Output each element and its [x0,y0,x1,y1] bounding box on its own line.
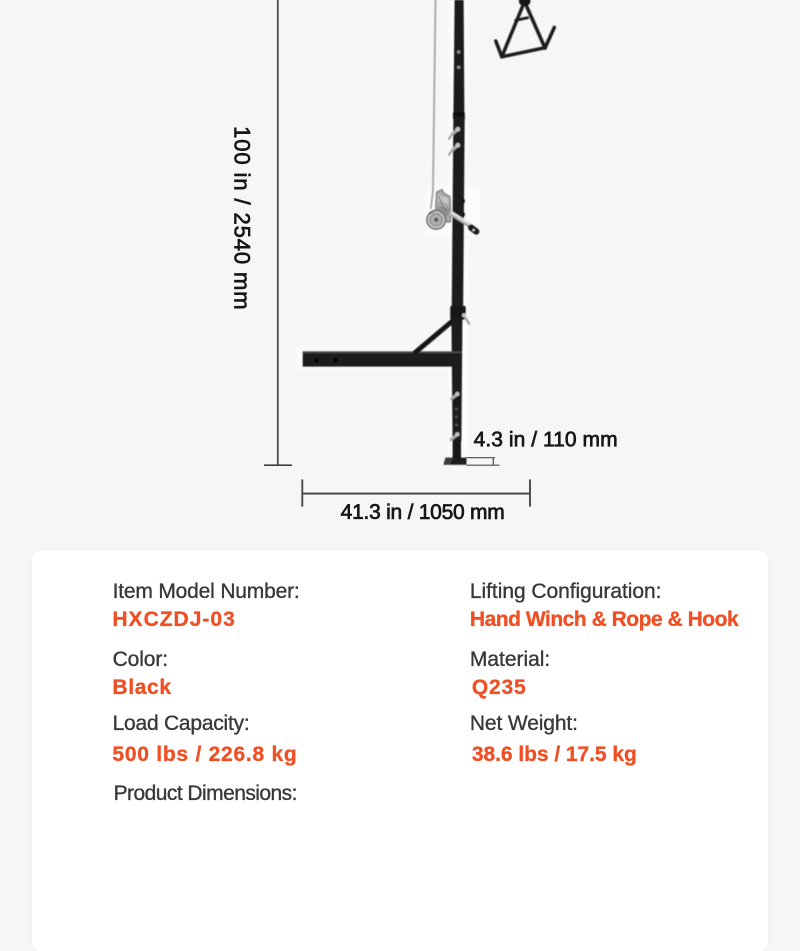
svg-text:100 in / 2540 mm: 100 in / 2540 mm [229,126,254,310]
svg-text:41.3 in / 1050 mm: 41.3 in / 1050 mm [341,501,505,524]
svg-text:4.3 in / 110 mm: 4.3 in / 110 mm [474,428,618,451]
